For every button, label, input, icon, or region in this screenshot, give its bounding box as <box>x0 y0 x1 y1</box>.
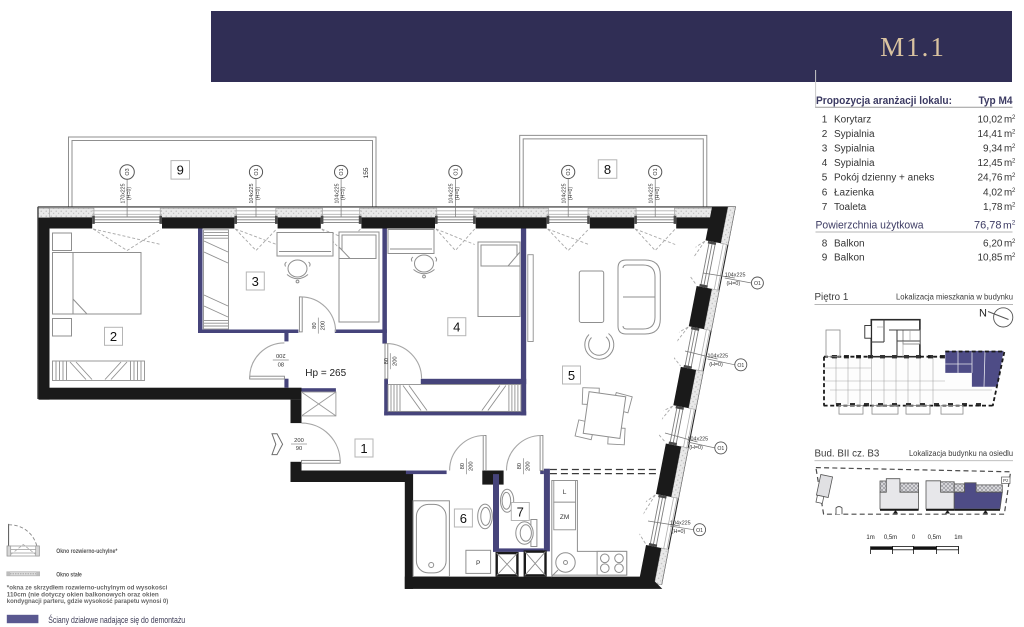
svg-text:Bud. BII cz. B3: Bud. BII cz. B3 <box>815 449 880 460</box>
svg-text:Okno rozwierno-uchylne*: Okno rozwierno-uchylne* <box>56 548 117 555</box>
svg-text:80: 80 <box>517 463 523 469</box>
svg-text:(H=0): (H=0) <box>709 362 723 368</box>
svg-text:m: m <box>1004 129 1012 140</box>
svg-text:8: 8 <box>604 162 611 177</box>
svg-text:104x225: 104x225 <box>562 183 568 203</box>
svg-text:2: 2 <box>822 129 828 140</box>
svg-text:Piętro 1: Piętro 1 <box>815 292 849 303</box>
svg-text:Sypialnia: Sypialnia <box>834 158 875 169</box>
svg-text:O1: O1 <box>653 168 659 175</box>
svg-text:12,45: 12,45 <box>977 158 1002 169</box>
svg-text:m: m <box>1004 173 1012 184</box>
svg-text:200: 200 <box>320 321 326 331</box>
svg-text:104x225: 104x225 <box>688 437 709 443</box>
svg-text:(H=0): (H=0) <box>672 529 686 535</box>
svg-text:Pokój dzienny + aneks: Pokój dzienny + aneks <box>834 173 934 184</box>
svg-text:m: m <box>1004 187 1012 198</box>
svg-text:2: 2 <box>110 329 117 344</box>
svg-text:O1: O1 <box>717 446 724 452</box>
svg-text:ZM: ZM <box>560 514 569 521</box>
svg-text:Balkon: Balkon <box>834 253 865 264</box>
svg-text:10,02: 10,02 <box>977 114 1002 125</box>
svg-text:104x225: 104x225 <box>449 183 455 203</box>
svg-text:104x225: 104x225 <box>708 354 729 360</box>
svg-text:14,41: 14,41 <box>977 129 1002 140</box>
svg-text:(H=0): (H=0) <box>127 187 133 200</box>
svg-text:M1.1: M1.1 <box>880 32 946 62</box>
svg-text:O1: O1 <box>339 168 345 175</box>
svg-text:200: 200 <box>525 461 531 471</box>
svg-text:200: 200 <box>276 352 286 358</box>
svg-text:4,02: 4,02 <box>983 187 1003 198</box>
svg-text:76,78: 76,78 <box>974 219 1002 231</box>
svg-text:1m: 1m <box>866 535 874 541</box>
svg-text:Lokalizacja budynku na osiedlu: Lokalizacja budynku na osiedlu <box>909 449 1013 458</box>
svg-text:*okna ze skrzydłem rozwierno-u: *okna ze skrzydłem rozwierno-uchylnym od… <box>7 586 168 592</box>
svg-text:7: 7 <box>822 202 828 213</box>
svg-text:2: 2 <box>1012 220 1016 227</box>
svg-text:3: 3 <box>822 144 828 155</box>
svg-text:8: 8 <box>822 239 828 250</box>
svg-text:O3: O3 <box>125 168 131 175</box>
svg-text:(H=0): (H=0) <box>341 187 347 200</box>
svg-text:Typ M4: Typ M4 <box>979 95 1014 107</box>
svg-text:4: 4 <box>453 320 460 335</box>
svg-text:Sypialnia: Sypialnia <box>834 129 875 140</box>
svg-text:4: 4 <box>822 158 828 169</box>
svg-text:Sypialnia: Sypialnia <box>834 144 875 155</box>
svg-text:1m: 1m <box>954 535 962 541</box>
svg-text:7: 7 <box>517 504 524 519</box>
svg-text:L: L <box>563 489 567 496</box>
svg-text:Lokalizacja mieszkania w budyn: Lokalizacja mieszkania w budynku <box>896 293 1013 302</box>
svg-text:110cm (nie dotyczy okien balko: 110cm (nie dotyczy okien balkonowych ora… <box>7 592 159 598</box>
svg-text:3: 3 <box>252 274 259 289</box>
svg-text:155: 155 <box>363 167 370 178</box>
svg-text:O1: O1 <box>754 281 761 287</box>
svg-text:200: 200 <box>294 438 304 444</box>
svg-text:Korytarz: Korytarz <box>834 114 871 125</box>
svg-text:(H=0): (H=0) <box>256 187 262 200</box>
svg-text:104x225: 104x225 <box>249 183 255 203</box>
svg-text:104x225: 104x225 <box>649 183 655 203</box>
svg-text:9: 9 <box>822 253 828 264</box>
svg-text:104x225: 104x225 <box>725 273 746 279</box>
svg-text:O1: O1 <box>453 168 459 175</box>
svg-text:(H=0): (H=0) <box>727 281 741 287</box>
svg-text:Łazienka: Łazienka <box>834 187 874 198</box>
svg-text:(H=0): (H=0) <box>655 187 661 200</box>
svg-text:P: P <box>476 560 480 567</box>
svg-text:80: 80 <box>312 322 318 328</box>
svg-text:5: 5 <box>568 368 575 383</box>
svg-text:Okno stałe: Okno stałe <box>56 571 82 578</box>
svg-text:80: 80 <box>278 360 284 366</box>
svg-text:Powierzchnia użytkowa: Powierzchnia użytkowa <box>816 219 925 231</box>
svg-text:6,20: 6,20 <box>983 239 1003 250</box>
svg-text:104x225: 104x225 <box>334 183 340 203</box>
svg-text:(H=0): (H=0) <box>455 187 461 200</box>
svg-text:90: 90 <box>296 446 302 452</box>
svg-text:0,5m: 0,5m <box>928 535 941 541</box>
svg-text:6: 6 <box>822 187 828 198</box>
svg-text:9,34: 9,34 <box>983 144 1003 155</box>
svg-text:24,76: 24,76 <box>977 173 1002 184</box>
svg-text:80: 80 <box>384 358 390 364</box>
svg-text:m: m <box>1004 114 1012 125</box>
svg-text:(H=0): (H=0) <box>568 187 574 200</box>
svg-text:170x225: 170x225 <box>120 183 126 203</box>
svg-text:Ściany działowe nadające się d: Ściany działowe nadające się do demontaż… <box>48 614 185 625</box>
svg-text:Toaleta: Toaleta <box>834 202 867 213</box>
svg-text:O1: O1 <box>566 168 572 175</box>
svg-text:m: m <box>1004 144 1012 155</box>
svg-text:200: 200 <box>392 356 398 366</box>
svg-text:O1: O1 <box>254 168 260 175</box>
svg-text:1,78: 1,78 <box>983 202 1003 213</box>
svg-text:Balkon: Balkon <box>834 239 865 250</box>
svg-text:m: m <box>1004 253 1012 264</box>
svg-text:m: m <box>1004 202 1012 213</box>
svg-text:Pz: Pz <box>1003 478 1009 483</box>
svg-text:6: 6 <box>460 511 467 526</box>
svg-text:Hp = 265: Hp = 265 <box>305 368 346 379</box>
svg-text:10,85: 10,85 <box>977 253 1002 264</box>
svg-text:m: m <box>1004 239 1012 250</box>
svg-text:0,5m: 0,5m <box>884 535 897 541</box>
svg-text:9: 9 <box>177 163 184 178</box>
svg-text:O1: O1 <box>737 363 744 369</box>
svg-text:m: m <box>1004 158 1012 169</box>
svg-text:N: N <box>979 308 987 320</box>
svg-text:O1: O1 <box>696 528 703 534</box>
svg-text:1: 1 <box>822 114 828 125</box>
svg-text:104x225: 104x225 <box>670 521 691 527</box>
svg-text:200: 200 <box>468 461 474 471</box>
svg-text:80: 80 <box>460 463 466 469</box>
svg-text:kondygnacji parteru, gdzie wys: kondygnacji parteru, gdzie wysokość para… <box>7 599 169 605</box>
svg-text:Propozycja aranżacji lokalu:: Propozycja aranżacji lokalu: <box>816 95 952 107</box>
svg-text:m: m <box>1003 219 1012 231</box>
svg-text:5: 5 <box>822 173 828 184</box>
svg-text:(H=0): (H=0) <box>689 445 703 451</box>
svg-text:1: 1 <box>360 441 367 456</box>
